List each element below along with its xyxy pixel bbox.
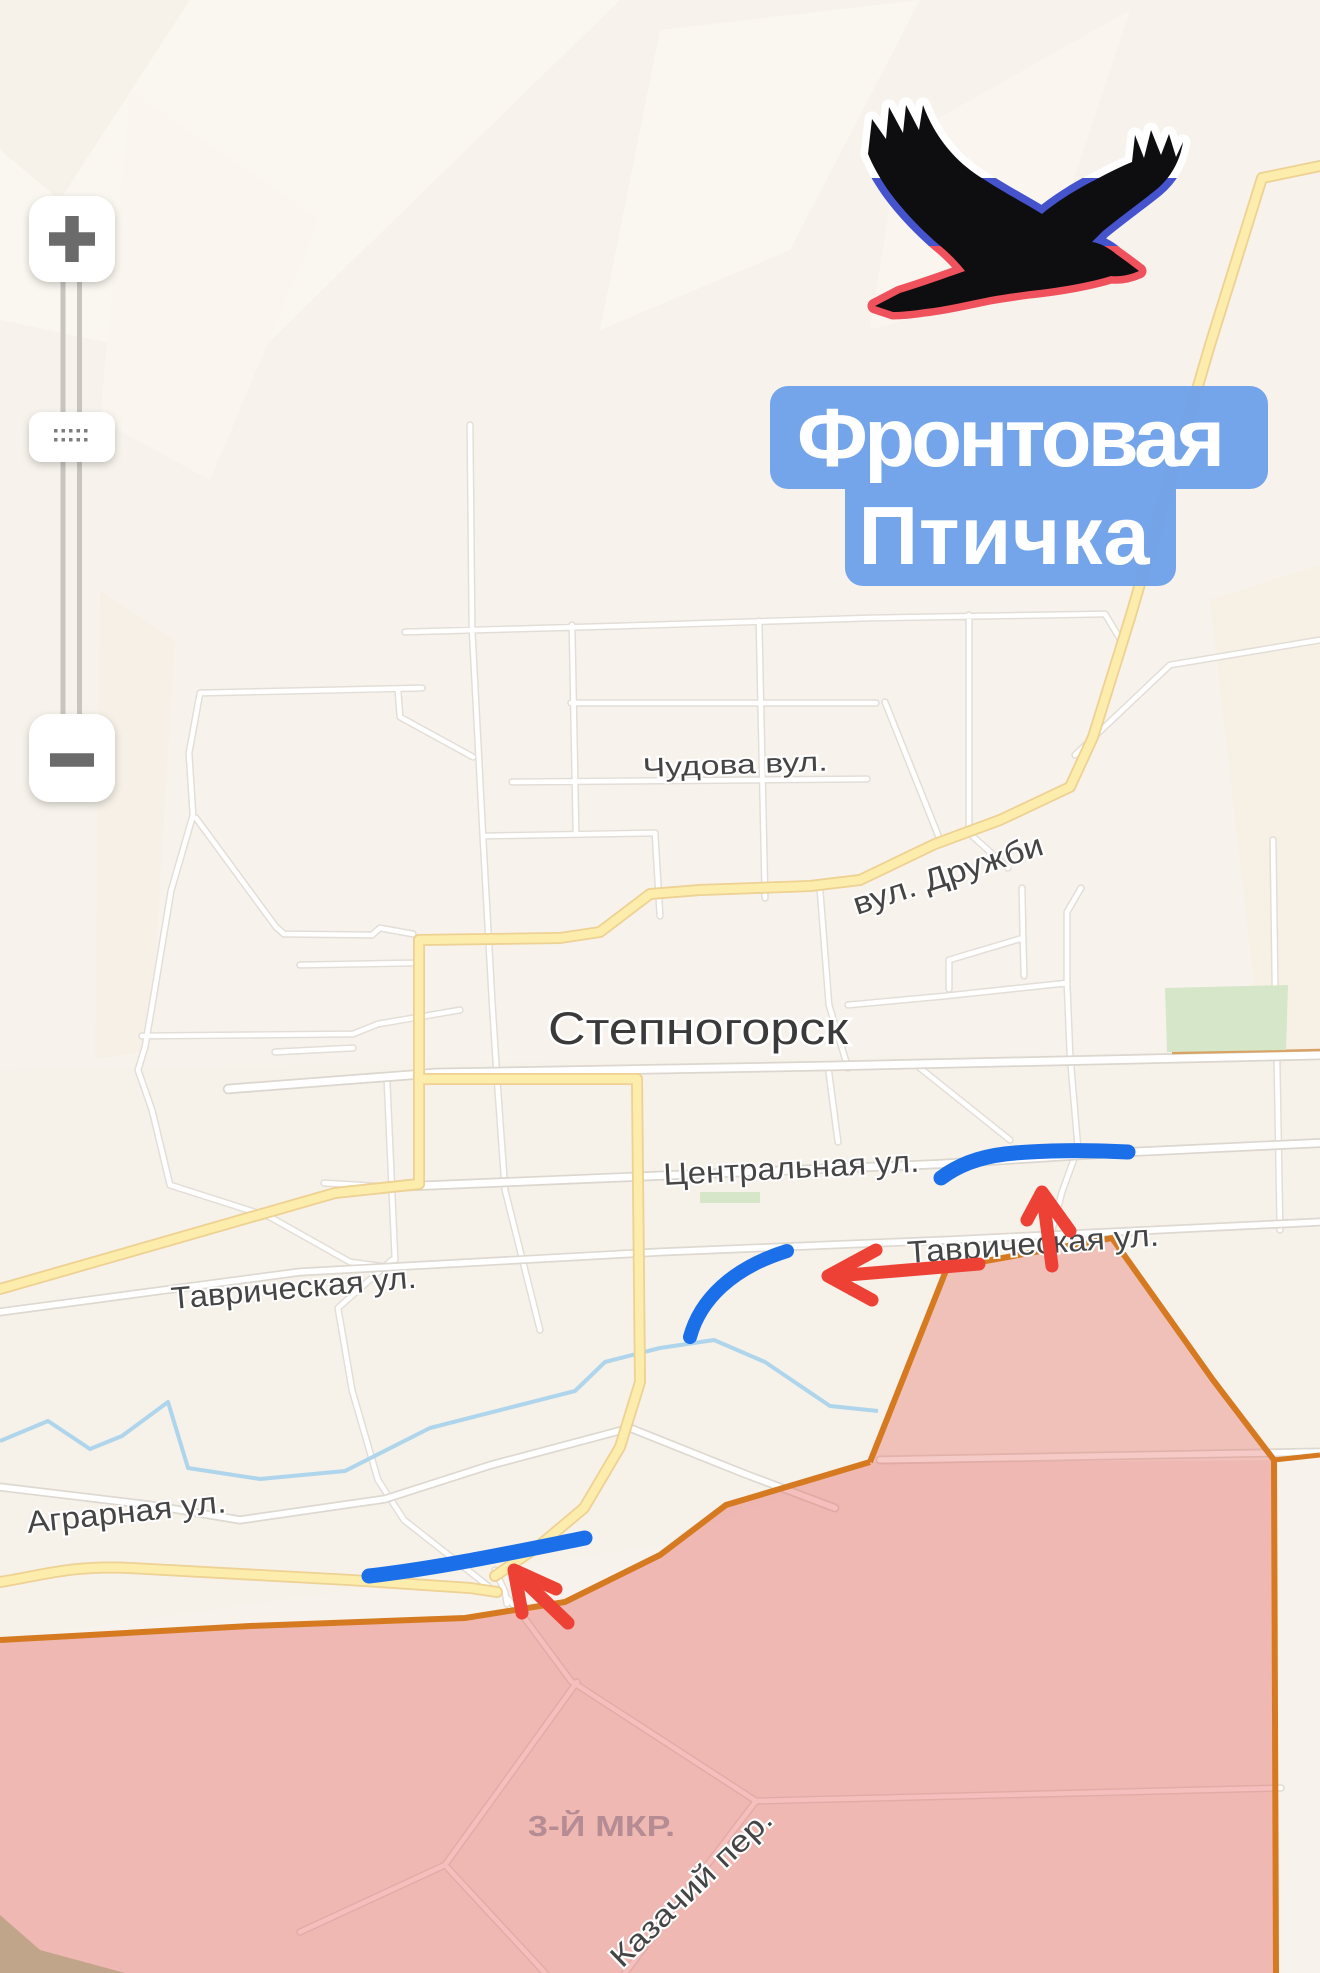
svg-text:Степногорск: Степногорск — [548, 1003, 848, 1054]
svg-text:Птичка: Птичка — [859, 489, 1151, 582]
svg-text:Фронтовая: Фронтовая — [797, 391, 1225, 484]
svg-text:3-Й МКР.: 3-Й МКР. — [528, 1809, 675, 1843]
